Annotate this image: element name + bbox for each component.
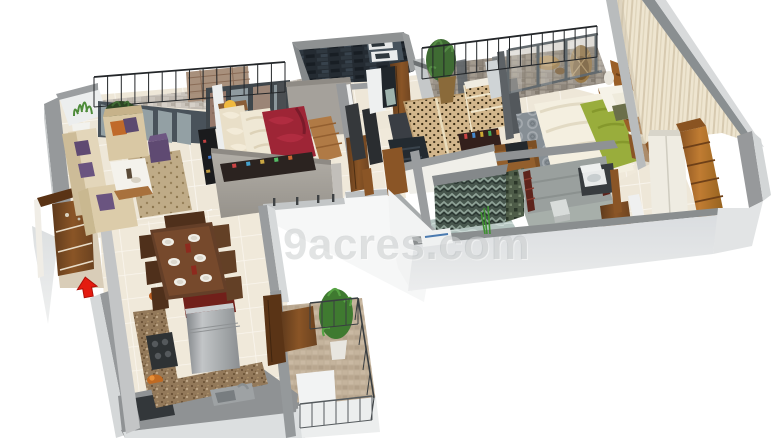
svg-text:9acres.com: 9acres.com <box>283 220 530 269</box>
